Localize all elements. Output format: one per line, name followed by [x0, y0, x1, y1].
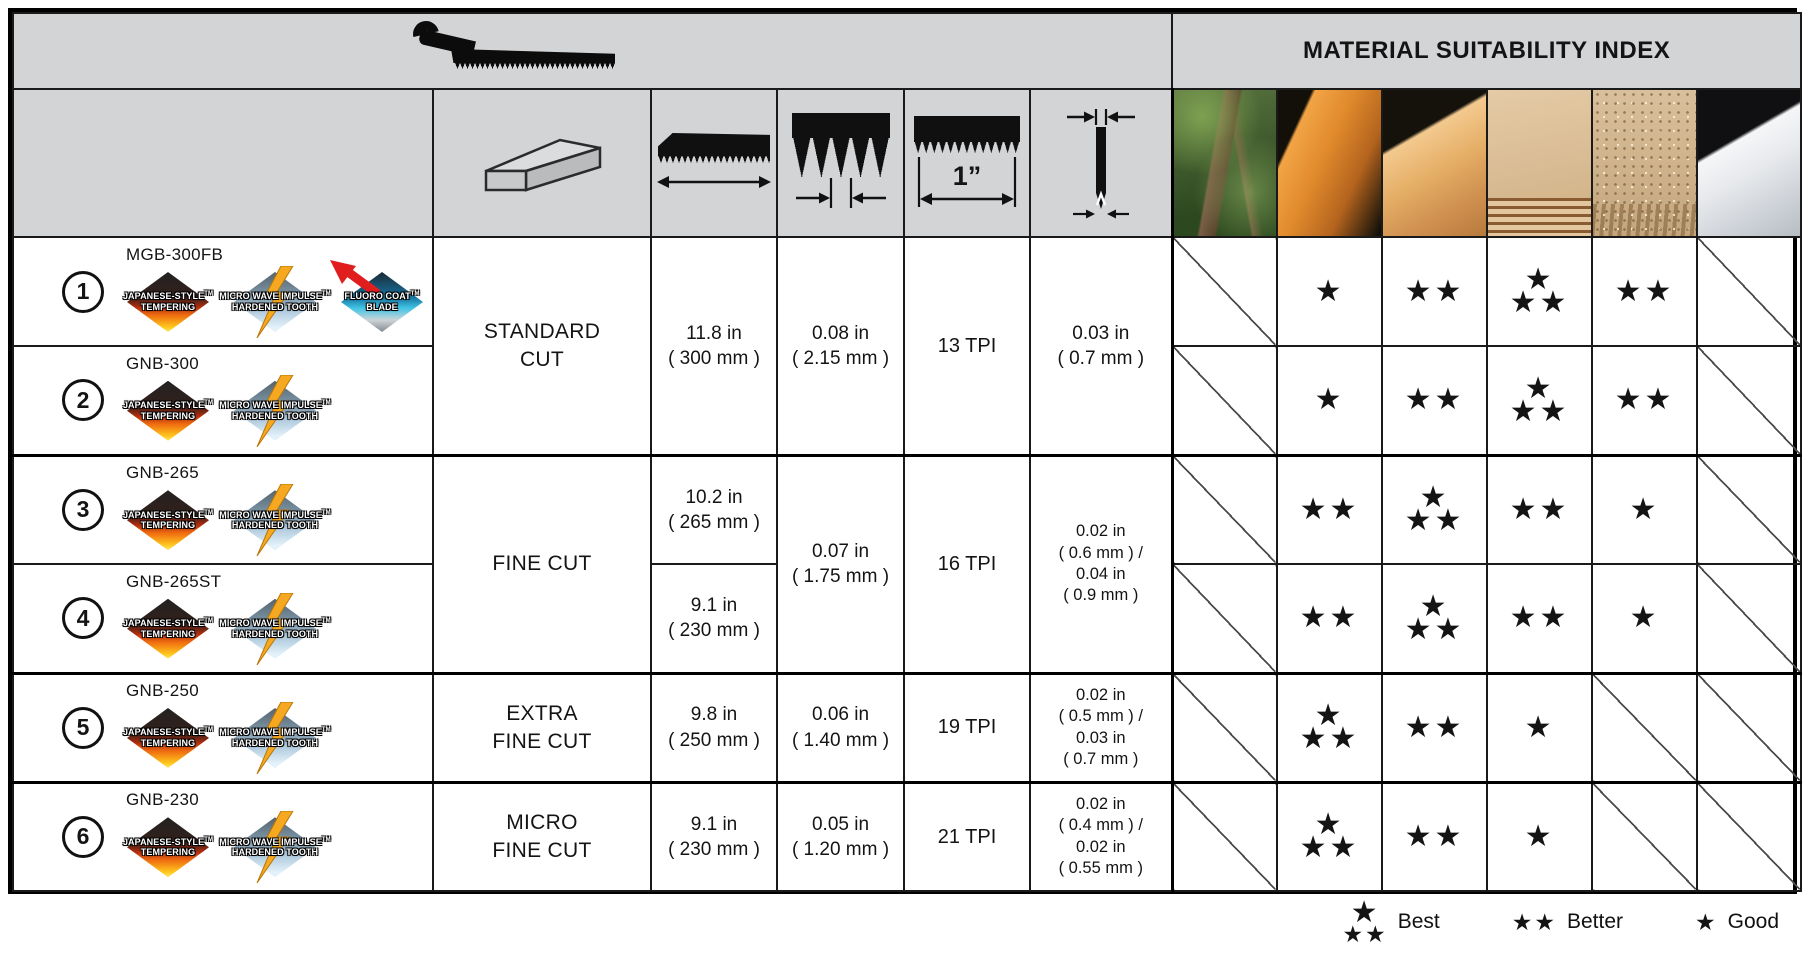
badge-line: JAPANESE-STYLETM: [123, 400, 213, 411]
model-name: GNB-300: [126, 354, 199, 374]
blade-thickness-cell: 0.06 in( 1.40 mm ): [777, 673, 904, 782]
material-suitability-header: MATERIAL SUITABILITY INDEX: [1172, 13, 1801, 89]
rating-softwood-Best: ★★★: [1277, 782, 1382, 891]
rating-hardwood-Best: ★★★: [1382, 455, 1487, 564]
badge-line: MICRO WAVE IMPULSETM: [219, 510, 331, 521]
kerf-cell-line: 0.02 in: [1076, 522, 1126, 540]
product-row-1: 1MGB-300FBJAPANESE-STYLETMTEMPERINGMICRO…: [13, 237, 1801, 346]
cut-type-cell-line: EXTRA: [506, 702, 578, 725]
badge-jst: JAPANESE-STYLETMTEMPERING: [116, 266, 220, 338]
rating-tree-not-suitable: [1172, 782, 1277, 891]
star-rating-2: ★★: [1383, 822, 1486, 852]
blade-length-icon: [652, 90, 776, 236]
model-cell-MGB-300FB: 1MGB-300FBJAPANESE-STYLETMTEMPERINGMICRO…: [13, 237, 433, 346]
trademark-mark: TM: [204, 510, 213, 516]
kerf-cell-line: ( 0.4 mm ) /: [1059, 816, 1143, 834]
star-rating-2: ★★: [1383, 385, 1486, 415]
rating-plywood-Best: ★★★: [1487, 346, 1592, 455]
item-number-badge: 3: [62, 489, 104, 531]
star-icon: ★★: [1405, 385, 1465, 415]
teeth-per-inch-header: 1”: [904, 89, 1030, 237]
badge-row: JAPANESE-STYLETMTEMPERINGMICRO WAVE IMPU…: [116, 593, 327, 665]
material-tree-photo: [1174, 90, 1277, 236]
badge-jst: JAPANESE-STYLETMTEMPERING: [116, 484, 220, 556]
cut-type-cell-line: FINE CUT: [492, 839, 591, 862]
model-name: GNB-230: [126, 790, 199, 810]
model-cell-GNB-250: 5GNB-250JAPANESE-STYLETMTEMPERINGMICRO W…: [13, 673, 433, 782]
trademark-mark: TM: [322, 618, 331, 624]
star-icon: ★★: [1512, 911, 1557, 934]
blade-length-cell: 9.1 in( 230 mm ): [651, 564, 777, 673]
badge-line: TEMPERING: [123, 738, 213, 749]
star-icon: ★: [1695, 911, 1718, 934]
star-rating-3: ★★★: [1488, 265, 1591, 318]
kerf-cell-line: ( 0.5 mm ) /: [1059, 707, 1143, 725]
rating-hardwood-Best: ★★★: [1382, 564, 1487, 673]
cut-type-cell-line: STANDARD: [484, 320, 600, 343]
badge-line: BLADE: [344, 302, 419, 313]
blade-length-cell-line: 10.2 in: [685, 487, 742, 508]
badge-mwi: MICRO WAVE IMPULSETMHARDENED TOOTH: [223, 266, 327, 338]
star-rating-3: ★★★: [1383, 592, 1486, 645]
rating-particle-Better: ★★: [1592, 346, 1697, 455]
badge-line: JAPANESE-STYLETM: [123, 510, 213, 521]
material-header-hardwood: [1382, 89, 1487, 237]
model-wrap: 2GNB-300JAPANESE-STYLETMTEMPERINGMICRO W…: [14, 354, 432, 447]
teeth-per-inch-icon: 1”: [905, 90, 1029, 236]
model-info: GNB-265STJAPANESE-STYLETMTEMPERINGMICRO …: [116, 572, 327, 665]
material-header-sheet: [1697, 89, 1801, 237]
blade-thickness-cell-line: 0.05 in: [812, 814, 869, 835]
badge-jst-label: JAPANESE-STYLETMTEMPERING: [123, 618, 213, 639]
badge-line: HARDENED TOOTH: [219, 302, 331, 313]
saw-catalog-sheet: MATERIAL SUITABILITY INDEX: [0, 0, 1805, 966]
kerf-cell: 0.03 in( 0.7 mm ): [1030, 237, 1172, 455]
badge-line: MICRO WAVE IMPULSETM: [219, 400, 331, 411]
star-rating-2: ★★: [1278, 495, 1381, 525]
blade-length-cell-line: ( 300 mm ): [668, 348, 760, 369]
badge-line: JAPANESE-STYLETM: [123, 618, 213, 629]
badge-line: JAPANESE-STYLETM: [123, 837, 213, 848]
legend-label: Good: [1728, 910, 1779, 934]
material-header-particle: [1592, 89, 1697, 237]
blade-length-cell-line: ( 250 mm ): [668, 730, 760, 751]
blade-cross-section-header: [433, 89, 651, 237]
legend-star-rating-3: ★★★: [1342, 898, 1387, 946]
star-icon: ★★: [1510, 603, 1570, 633]
badge-jst-label: JAPANESE-STYLETMTEMPERING: [123, 400, 213, 421]
cut-type-cell-line: FINE CUT: [492, 552, 591, 575]
blade-length-cell-line: ( 265 mm ): [668, 512, 760, 533]
badge-mwi-label: MICRO WAVE IMPULSETMHARDENED TOOTH: [219, 837, 331, 858]
rating-softwood-Best: ★★★: [1277, 673, 1382, 782]
blade-cross-section-icon: [434, 90, 650, 236]
item-number-badge: 2: [62, 379, 104, 421]
model-name: GNB-265ST: [126, 572, 221, 592]
star-rating-2: ★★: [1488, 495, 1591, 525]
badge-row: JAPANESE-STYLETMTEMPERINGMICRO WAVE IMPU…: [116, 375, 327, 447]
badge-jst: JAPANESE-STYLETMTEMPERING: [116, 375, 220, 447]
badge-mwi-label: MICRO WAVE IMPULSETMHARDENED TOOTH: [219, 510, 331, 531]
badge-line: TEMPERING: [123, 847, 213, 858]
badge-line: TEMPERING: [123, 520, 213, 531]
tpi-cell-line: 16 TPI: [938, 553, 997, 575]
blade-thickness-cell: 0.08 in( 2.15 mm ): [777, 237, 904, 455]
badge-jst-label: JAPANESE-STYLETMTEMPERING: [123, 510, 213, 531]
rating-sheet-not-suitable: [1697, 237, 1801, 346]
star-rating-2: ★★: [1593, 385, 1696, 415]
trademark-mark: TM: [322, 837, 331, 843]
blade-length-cell: 10.2 in( 265 mm ): [651, 455, 777, 564]
kerf-cell-line: 0.02 in: [1076, 686, 1126, 704]
star-icon: ★: [1630, 495, 1660, 525]
kerf-cell-line: ( 0.9 mm ): [1063, 586, 1138, 604]
kerf-cell-line: 0.02 in: [1076, 838, 1126, 856]
kerf-cell-line: 0.03 in: [1076, 729, 1126, 747]
kerf-cell-line: ( 0.7 mm ): [1058, 348, 1145, 369]
blade-length-cell: 9.8 in( 250 mm ): [651, 673, 777, 782]
blade-length-cell-line: 9.8 in: [691, 704, 737, 725]
badge-line: JAPANESE-STYLETM: [123, 291, 213, 302]
badge-line: HARDENED TOOTH: [219, 738, 331, 749]
material-softwood-photo: [1278, 90, 1381, 236]
product-row-5: 5GNB-250JAPANESE-STYLETMTEMPERINGMICRO W…: [13, 673, 1801, 782]
model-name: GNB-250: [126, 681, 199, 701]
rating-particle-Better: ★★: [1592, 237, 1697, 346]
star-rating-3: ★★★: [1278, 701, 1381, 754]
kerf-cell-line: ( 0.55 mm ): [1059, 859, 1143, 877]
tpi-cell-line: 21 TPI: [938, 826, 997, 848]
rating-tree-not-suitable: [1172, 346, 1277, 455]
material-plywood-photo: [1488, 90, 1591, 236]
badge-jst-label: JAPANESE-STYLETMTEMPERING: [123, 837, 213, 858]
badge-mwi: MICRO WAVE IMPULSETMHARDENED TOOTH: [223, 702, 327, 774]
model-wrap: 6GNB-230JAPANESE-STYLETMTEMPERINGMICRO W…: [14, 790, 432, 883]
star-rating-1: ★: [1593, 495, 1696, 525]
rating-plywood-Best: ★★★: [1487, 237, 1592, 346]
star-icon: ★★: [1300, 724, 1360, 754]
blade-length-cell-line: ( 230 mm ): [668, 620, 760, 641]
blade-length-cell-line: ( 230 mm ): [668, 839, 760, 860]
star-icon: ★: [1525, 713, 1555, 743]
rating-sheet-not-suitable: [1697, 455, 1801, 564]
item-number-badge: 5: [62, 707, 104, 749]
rating-tree-not-suitable: [1172, 673, 1277, 782]
blade-thickness-cell-line: ( 1.20 mm ): [792, 839, 889, 860]
one-inch-label: 1”: [914, 161, 1020, 192]
legend-label: Better: [1567, 910, 1623, 934]
cut-type-cell: FINE CUT: [433, 455, 651, 673]
kerf-width-icon: [1031, 90, 1171, 236]
badge-mwi: MICRO WAVE IMPULSETMHARDENED TOOTH: [223, 375, 327, 447]
star-icon: ★★: [1405, 822, 1465, 852]
badge-jst: JAPANESE-STYLETMTEMPERING: [116, 593, 220, 665]
blade-thickness-cell-line: 0.06 in: [812, 704, 869, 725]
badge-line: HARDENED TOOTH: [219, 411, 331, 422]
model-wrap: 5GNB-250JAPANESE-STYLETMTEMPERINGMICRO W…: [14, 681, 432, 774]
kerf-cell-line: 0.02 in: [1076, 795, 1126, 813]
saw-spec-table: MATERIAL SUITABILITY INDEX: [12, 12, 1802, 892]
blade-length-cell: 11.8 in( 300 mm ): [651, 237, 777, 455]
blade-thickness-cell-line: ( 2.15 mm ): [792, 348, 889, 369]
blade-thickness-cell-line: 0.08 in: [812, 323, 869, 344]
trademark-mark: TM: [204, 400, 213, 406]
trademark-mark: TM: [322, 291, 331, 297]
legend-item-better: ★★Better: [1512, 910, 1623, 934]
material-suitability-title: MATERIAL SUITABILITY INDEX: [1303, 37, 1670, 64]
model-cell-GNB-300: 2GNB-300JAPANESE-STYLETMTEMPERINGMICRO W…: [13, 346, 433, 455]
model-cell-GNB-265: 3GNB-265JAPANESE-STYLETMTEMPERINGMICRO W…: [13, 455, 433, 564]
cut-type-cell-line: FINE CUT: [492, 730, 591, 753]
star-icon: ★★: [1510, 495, 1570, 525]
legend-item-best: ★★★Best: [1342, 898, 1439, 946]
rating-plywood-Good: ★: [1487, 782, 1592, 891]
rating-plywood-Better: ★★: [1487, 564, 1592, 673]
material-header-plywood: [1487, 89, 1592, 237]
badge-line: TEMPERING: [123, 629, 213, 640]
badge-jst-label: JAPANESE-STYLETMTEMPERING: [123, 727, 213, 748]
rating-hardwood-Better: ★★: [1382, 673, 1487, 782]
star-icon: ★: [1315, 385, 1345, 415]
rating-tree-not-suitable: [1172, 564, 1277, 673]
star-icon: ★★: [1405, 615, 1465, 645]
material-header-tree: [1172, 89, 1277, 237]
rating-hardwood-Better: ★★: [1382, 237, 1487, 346]
rating-particle-not-suitable: [1592, 782, 1697, 891]
blade-length-cell-line: 9.1 in: [691, 595, 737, 616]
badge-mwi-label: MICRO WAVE IMPULSETMHARDENED TOOTH: [219, 291, 331, 312]
rating-legend: ★★★Best★★Better★Good: [1342, 898, 1779, 946]
tooth-pitch-icon: [778, 90, 903, 236]
star-icon: ★★: [1300, 603, 1360, 633]
rating-plywood-Better: ★★: [1487, 455, 1592, 564]
pull-saw-silhouette-icon: [409, 19, 619, 83]
legend-item-good: ★Good: [1695, 910, 1779, 934]
model-name: GNB-265: [126, 463, 199, 483]
rating-sheet-not-suitable: [1697, 673, 1801, 782]
rating-softwood-Good: ★: [1277, 237, 1382, 346]
tpi-cell: 19 TPI: [904, 673, 1030, 782]
star-icon: ★★: [1405, 277, 1465, 307]
cut-type-cell: MICROFINE CUT: [433, 782, 651, 891]
star-rating-2: ★★: [1488, 603, 1591, 633]
model-wrap: 3GNB-265JAPANESE-STYLETMTEMPERINGMICRO W…: [14, 463, 432, 556]
badge-line: FLUORO COATTM: [344, 291, 419, 302]
kerf-cell: 0.02 in( 0.4 mm ) /0.02 in( 0.55 mm ): [1030, 782, 1172, 891]
star-rating-1: ★: [1278, 385, 1381, 415]
kerf-cell-line: ( 0.6 mm ) /: [1059, 544, 1143, 562]
rating-hardwood-Better: ★★: [1382, 782, 1487, 891]
rating-particle-Good: ★: [1592, 455, 1697, 564]
badge-line: MICRO WAVE IMPULSETM: [219, 291, 331, 302]
rating-sheet-not-suitable: [1697, 346, 1801, 455]
rating-softwood-Better: ★★: [1277, 455, 1382, 564]
item-number-badge: 6: [62, 816, 104, 858]
trademark-mark: TM: [204, 618, 213, 624]
model-cell-GNB-265ST: 4GNB-265STJAPANESE-STYLETMTEMPERINGMICRO…: [13, 564, 433, 673]
tpi-cell: 13 TPI: [904, 237, 1030, 455]
star-rating-1: ★: [1278, 277, 1381, 307]
tpi-cell: 21 TPI: [904, 782, 1030, 891]
badge-mwi-label: MICRO WAVE IMPULSETMHARDENED TOOTH: [219, 400, 331, 421]
model-wrap: 4GNB-265STJAPANESE-STYLETMTEMPERINGMICRO…: [14, 572, 432, 665]
tpi-cell: 16 TPI: [904, 455, 1030, 673]
trademark-mark: TM: [411, 291, 420, 297]
model-wrap: 1MGB-300FBJAPANESE-STYLETMTEMPERINGMICRO…: [14, 245, 432, 338]
star-rating-2: ★★: [1383, 713, 1486, 743]
trademark-mark: TM: [322, 510, 331, 516]
tooth-pitch-header: [777, 89, 904, 237]
badge-line: MICRO WAVE IMPULSETM: [219, 727, 331, 738]
rating-softwood-Good: ★: [1277, 346, 1382, 455]
badge-line: TEMPERING: [123, 302, 213, 313]
cut-type-cell-line: CUT: [520, 348, 564, 371]
star-icon: ★: [1315, 277, 1345, 307]
model-info: GNB-300JAPANESE-STYLETMTEMPERINGMICRO WA…: [116, 354, 327, 447]
star-icon: ★★: [1300, 833, 1360, 863]
badge-jst-label: JAPANESE-STYLETMTEMPERING: [123, 291, 213, 312]
kerf-cell: 0.02 in( 0.5 mm ) /0.03 in( 0.7 mm ): [1030, 673, 1172, 782]
star-rating-1: ★: [1593, 603, 1696, 633]
badge-jst: JAPANESE-STYLETMTEMPERING: [116, 702, 220, 774]
spec-table-frame: MATERIAL SUITABILITY INDEX: [8, 8, 1797, 894]
legend-label: Best: [1398, 910, 1440, 934]
trademark-mark: TM: [322, 400, 331, 406]
saw-header-cell: [13, 13, 1172, 89]
blade-length-cell-line: 11.8 in: [686, 323, 742, 344]
badge-line: HARDENED TOOTH: [219, 520, 331, 531]
badge-mwi: MICRO WAVE IMPULSETMHARDENED TOOTH: [223, 593, 327, 665]
rating-sheet-not-suitable: [1697, 564, 1801, 673]
trademark-mark: TM: [204, 727, 213, 733]
star-rating-1: ★: [1488, 713, 1591, 743]
badge-mwi-label: MICRO WAVE IMPULSETMHARDENED TOOTH: [219, 727, 331, 748]
model-name: MGB-300FB: [126, 245, 223, 265]
kerf-cell-line: 0.04 in: [1076, 565, 1126, 583]
item-number-badge: 1: [62, 271, 104, 313]
star-icon: ★★: [1510, 397, 1570, 427]
product-row-6: 6GNB-230JAPANESE-STYLETMTEMPERINGMICRO W…: [13, 782, 1801, 891]
star-icon: ★: [1525, 822, 1555, 852]
material-hardwood-photo: [1383, 90, 1486, 236]
rating-tree-not-suitable: [1172, 237, 1277, 346]
blade-thickness-cell: 0.07 in( 1.75 mm ): [777, 455, 904, 673]
rating-tree-not-suitable: [1172, 455, 1277, 564]
item-number-badge: 4: [62, 597, 104, 639]
badge-fcb-label: FLUORO COATTMBLADE: [344, 291, 419, 312]
blade-length-header: [651, 89, 777, 237]
badge-line: HARDENED TOOTH: [219, 629, 331, 640]
legend-star-rating-2: ★★: [1512, 911, 1557, 934]
blade-thickness-cell-line: ( 1.75 mm ): [792, 566, 889, 587]
model-info: GNB-230JAPANESE-STYLETMTEMPERINGMICRO WA…: [116, 790, 327, 883]
product-row-3: 3GNB-265JAPANESE-STYLETMTEMPERINGMICRO W…: [13, 455, 1801, 564]
cut-type-cell: EXTRAFINE CUT: [433, 673, 651, 782]
badge-line: TEMPERING: [123, 411, 213, 422]
model-info: GNB-265JAPANESE-STYLETMTEMPERINGMICRO WA…: [116, 463, 327, 556]
cut-type-cell: STANDARDCUT: [433, 237, 651, 455]
star-icon: ★: [1630, 603, 1660, 633]
badge-jst: JAPANESE-STYLETMTEMPERING: [116, 811, 220, 883]
kerf-width-header: [1030, 89, 1172, 237]
model-info: GNB-250JAPANESE-STYLETMTEMPERINGMICRO WA…: [116, 681, 327, 774]
rating-softwood-Better: ★★: [1277, 564, 1382, 673]
material-sheet-photo: [1698, 90, 1800, 236]
star-icon: ★★: [1300, 495, 1360, 525]
rating-particle-Good: ★: [1592, 564, 1697, 673]
trademark-mark: TM: [204, 291, 213, 297]
star-icon: ★★: [1342, 923, 1387, 946]
badge-line: JAPANESE-STYLETM: [123, 727, 213, 738]
blade-length-cell-line: 9.1 in: [691, 814, 737, 835]
star-icon: ★★: [1405, 506, 1465, 536]
blade-thickness-cell-line: 0.07 in: [812, 541, 869, 562]
badge-line: MICRO WAVE IMPULSETM: [219, 837, 331, 848]
legend-star-rating-1: ★: [1695, 911, 1718, 934]
blade-thickness-cell: 0.05 in( 1.20 mm ): [777, 782, 904, 891]
badge-line: HARDENED TOOTH: [219, 847, 331, 858]
trademark-mark: TM: [322, 727, 331, 733]
badge-row: JAPANESE-STYLETMTEMPERINGMICRO WAVE IMPU…: [116, 702, 327, 774]
blade-length-cell: 9.1 in( 230 mm ): [651, 782, 777, 891]
blade-thickness-cell-line: ( 1.40 mm ): [792, 730, 889, 751]
star-rating-1: ★: [1488, 822, 1591, 852]
badge-mwi: MICRO WAVE IMPULSETMHARDENED TOOTH: [223, 811, 327, 883]
star-rating-3: ★★★: [1278, 810, 1381, 863]
star-icon: ★★: [1615, 385, 1675, 415]
badge-mwi-label: MICRO WAVE IMPULSETMHARDENED TOOTH: [219, 618, 331, 639]
kerf-cell-line: ( 0.7 mm ): [1063, 750, 1138, 768]
badge-row: JAPANESE-STYLETMTEMPERINGMICRO WAVE IMPU…: [116, 266, 433, 338]
model-cell-GNB-230: 6GNB-230JAPANESE-STYLETMTEMPERINGMICRO W…: [13, 782, 433, 891]
star-rating-2: ★★: [1593, 277, 1696, 307]
rating-plywood-Good: ★: [1487, 673, 1592, 782]
tpi-cell-line: 13 TPI: [938, 335, 997, 357]
rating-hardwood-Better: ★★: [1382, 346, 1487, 455]
star-rating-3: ★★★: [1383, 483, 1486, 536]
star-rating-3: ★★★: [1488, 374, 1591, 427]
star-rating-2: ★★: [1278, 603, 1381, 633]
kerf-cell-line: 0.03 in: [1072, 323, 1129, 344]
star-rating-2: ★★: [1383, 277, 1486, 307]
star-icon: ★★: [1510, 288, 1570, 318]
rating-particle-not-suitable: [1592, 673, 1697, 782]
kerf-cell: 0.02 in( 0.6 mm ) /0.04 in( 0.9 mm ): [1030, 455, 1172, 673]
badge-fcb: FLUORO COATTMBLADE: [330, 266, 433, 338]
star-icon: ★★: [1405, 713, 1465, 743]
badge-mwi: MICRO WAVE IMPULSETMHARDENED TOOTH: [223, 484, 327, 556]
cut-type-cell-line: MICRO: [506, 811, 578, 834]
tpi-cell-line: 19 TPI: [938, 716, 997, 738]
badge-row: JAPANESE-STYLETMTEMPERINGMICRO WAVE IMPU…: [116, 811, 327, 883]
rating-sheet-not-suitable: [1697, 782, 1801, 891]
badge-row: JAPANESE-STYLETMTEMPERINGMICRO WAVE IMPU…: [116, 484, 327, 556]
badge-line: MICRO WAVE IMPULSETM: [219, 618, 331, 629]
trademark-mark: TM: [204, 837, 213, 843]
material-header-softwood: [1277, 89, 1382, 237]
star-icon: ★★: [1615, 277, 1675, 307]
models-header-cell: [13, 89, 433, 237]
model-info: MGB-300FBJAPANESE-STYLETMTEMPERINGMICRO …: [116, 245, 433, 338]
material-particle-photo: [1593, 90, 1696, 236]
